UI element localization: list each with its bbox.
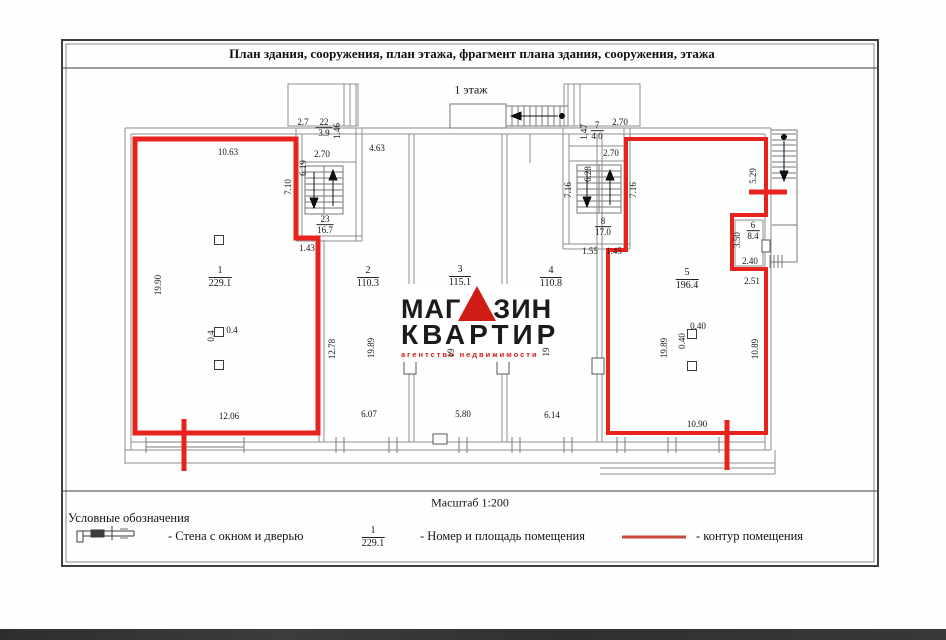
room6-label: 68.4 — [747, 220, 760, 242]
dim-rsw-left: 7.16 — [563, 182, 573, 198]
watermark-part2: ЗИН — [493, 298, 552, 321]
dim-room2-top: 4.63 — [369, 143, 385, 153]
dim-lsw-top-width: 2.7 — [297, 117, 308, 127]
dim-room4-left: 19 — [541, 348, 551, 357]
dim-room5-right: 10.89 — [750, 339, 760, 359]
dim-room1-left: 19.90 — [153, 275, 163, 295]
dim-rsw-bottom-left: 1.55 — [582, 246, 598, 256]
dim-lsw-height: 6.19 — [298, 160, 308, 176]
scale-label: Масштаб 1:200 — [431, 496, 509, 511]
legend-number-label: - Номер и площадь помещения — [420, 529, 585, 544]
room5-label: 5196.4 — [676, 267, 699, 291]
dim-rsw-height: 6.28 — [583, 166, 593, 182]
column-marker — [214, 360, 224, 370]
dim-room6-left: 3.50 — [732, 232, 742, 248]
dim-room5-left: 19.89 — [659, 338, 669, 358]
column-marker — [214, 235, 224, 245]
watermark-line1: МАГ ЗИН — [401, 286, 559, 321]
room1-label: 1229.1 — [209, 265, 232, 289]
dim-room6-below: 2.51 — [744, 276, 760, 286]
dim-room3-left: 19 — [446, 349, 456, 358]
dim-room1-col-w: 0.4 — [226, 325, 237, 335]
room2-label: 2110.3 — [357, 265, 379, 289]
dim-rsw-top-width: 2.70 — [612, 117, 628, 127]
floor-label: 1 этаж — [454, 83, 487, 98]
door-openings — [404, 358, 604, 444]
room4-label: 4110.8 — [540, 265, 562, 289]
legend-wall-label: - Стена с окном и дверью — [168, 529, 303, 544]
dim-rsw-right: 7.16 — [628, 182, 638, 198]
dim-room2-bottom: 6.07 — [361, 409, 377, 419]
column-marker — [687, 361, 697, 371]
dim-room2-wall-left: 12.78 — [327, 339, 337, 359]
agency-watermark: МАГ ЗИН КВАРТИР агентство недвижимости — [395, 284, 565, 362]
dim-lsw-left: 7.10 — [283, 179, 293, 195]
dim-room5-col-h: 0.40 — [677, 333, 687, 349]
dim-room4-bottom: 6.14 — [544, 410, 560, 420]
room22-label: 223.9 — [316, 117, 333, 139]
watermark-part1: МАГ — [401, 298, 461, 321]
page-title: План здания, сооружения, план этажа, фра… — [229, 46, 715, 62]
dim-room5-bottom: 10.90 — [687, 419, 707, 429]
watermark-tagline: агентство недвижимости — [401, 350, 559, 359]
column-marker — [687, 329, 697, 339]
legend-wall-icon — [77, 526, 134, 542]
room7-label: 74.0 — [591, 120, 604, 142]
scanned-floorplan-page: План здания, сооружения, план этажа, фра… — [0, 0, 946, 640]
room8-label: 817.0 — [595, 216, 611, 238]
watermark-line2: КВАРТИР — [401, 321, 559, 349]
column-marker — [214, 327, 224, 337]
dim-ext-stair: 5.29 — [748, 168, 758, 184]
exterior-stair-arrow — [780, 135, 788, 181]
dim-room1-bottom: 12.06 — [219, 411, 239, 421]
center-entrance-arrow — [511, 112, 564, 120]
legend-number-sample: 1229.1 — [362, 525, 385, 549]
dim-room1-step: 1.43 — [299, 243, 315, 253]
dim-room2-left: 19.89 — [366, 338, 376, 358]
dim-lsw-top-right: 1.46 — [332, 123, 342, 139]
legend-contour-label: - контур помещения — [696, 529, 803, 544]
dim-lsw-width: 2.70 — [314, 149, 330, 159]
dim-rsw-top-left: 1.47 — [579, 124, 589, 140]
logo-triangle-icon — [458, 286, 496, 321]
room3-label: 3115.1 — [449, 264, 471, 288]
room23-label: 2316.7 — [317, 214, 334, 236]
dim-rsw-bottom-right: 1.45 — [606, 246, 622, 256]
dim-room1-top: 10.63 — [218, 147, 238, 157]
dim-room3-bottom: 5.80 — [455, 409, 471, 419]
dim-room6-bottom: 2.40 — [742, 256, 758, 266]
legend-heading: Условные обозначения — [68, 511, 190, 526]
dim-rsw-width: 2.70 — [603, 148, 619, 158]
photo-edge-band — [0, 629, 946, 640]
